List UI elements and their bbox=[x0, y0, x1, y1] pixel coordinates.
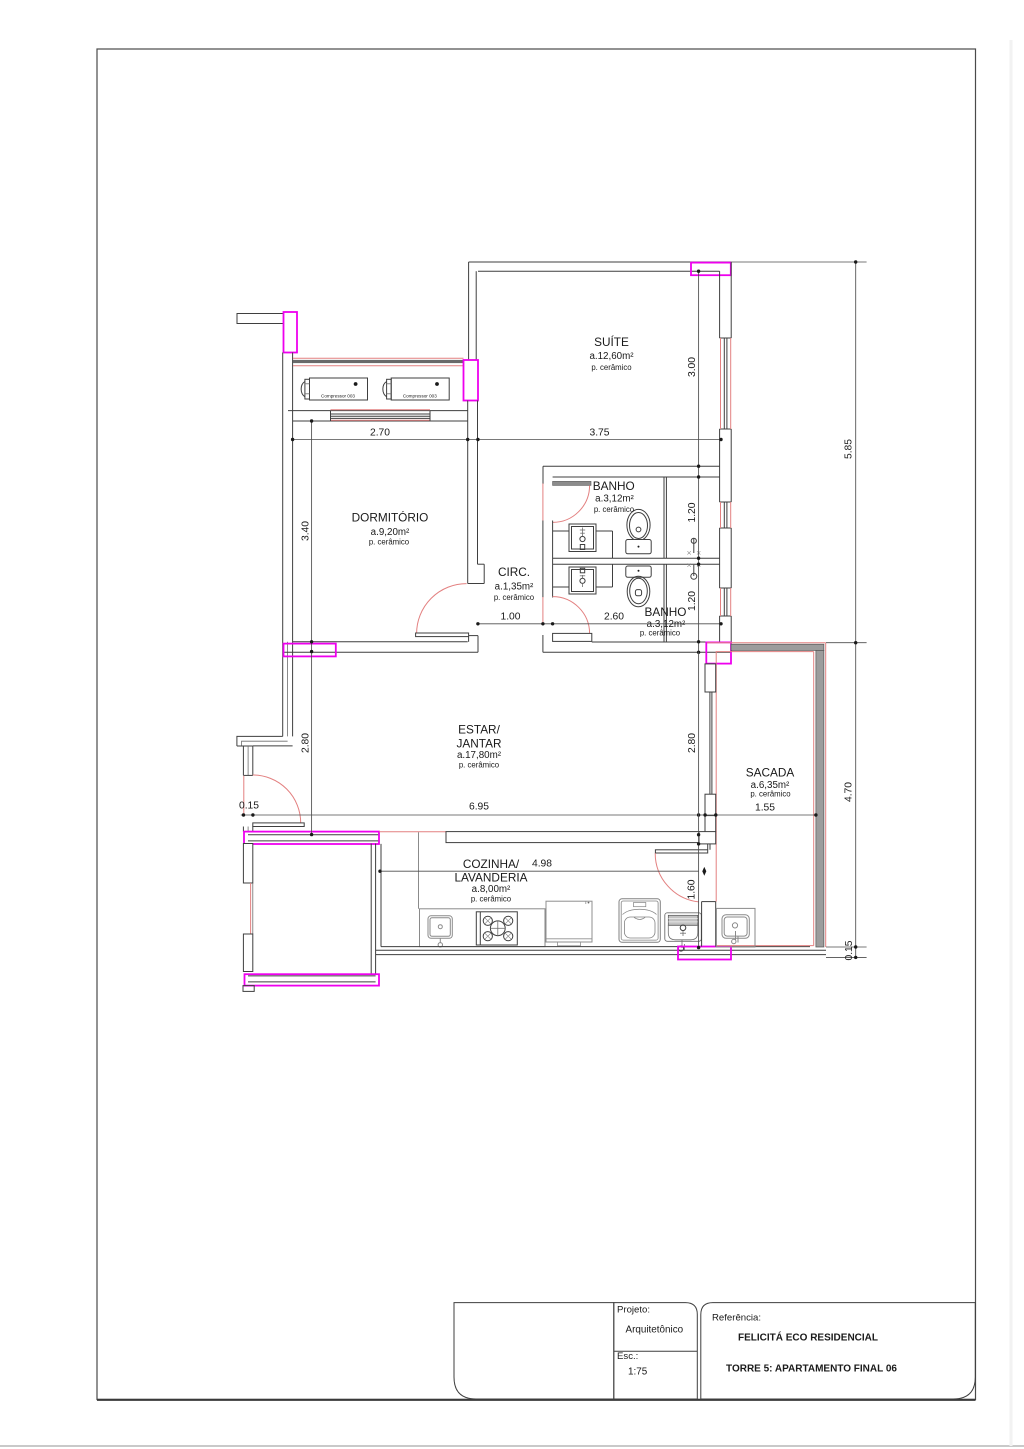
svg-text:1.55: 1.55 bbox=[755, 802, 775, 813]
svg-text:LAVANDERIA: LAVANDERIA bbox=[455, 871, 528, 885]
svg-text:0.15: 0.15 bbox=[239, 800, 259, 811]
svg-text:1:75: 1:75 bbox=[628, 1367, 648, 1378]
svg-text:FELICITÁ ECO RESIDENCIAL: FELICITÁ ECO RESIDENCIAL bbox=[738, 1331, 878, 1344]
svg-text:1.20: 1.20 bbox=[687, 502, 698, 522]
svg-text:p. cerâmico: p. cerâmico bbox=[471, 894, 512, 903]
svg-text:Projeto:: Projeto: bbox=[617, 1304, 650, 1315]
svg-text:3.75: 3.75 bbox=[589, 427, 609, 438]
svg-text:Esc.:: Esc.: bbox=[617, 1351, 638, 1362]
svg-text:2.80: 2.80 bbox=[687, 733, 698, 753]
svg-text:BANHO: BANHO bbox=[645, 605, 687, 619]
svg-text:Compressor 003: Compressor 003 bbox=[403, 393, 437, 398]
svg-text:3.00: 3.00 bbox=[687, 357, 698, 377]
svg-text:SUÍTE: SUÍTE bbox=[594, 335, 629, 349]
svg-text:3.40: 3.40 bbox=[301, 521, 312, 541]
svg-text:COZINHA/: COZINHA/ bbox=[463, 857, 520, 871]
svg-text:a.3,12m²: a.3,12m² bbox=[595, 494, 634, 505]
svg-text:Compressor 003: Compressor 003 bbox=[321, 393, 355, 398]
svg-text:JANTAR: JANTAR bbox=[456, 736, 501, 750]
svg-text:2.70: 2.70 bbox=[370, 427, 390, 438]
svg-text:5.85: 5.85 bbox=[844, 439, 855, 459]
svg-text:SACADA: SACADA bbox=[746, 765, 795, 779]
svg-text:DORMITÓRIO: DORMITÓRIO bbox=[352, 511, 429, 525]
svg-text:p. cerâmico: p. cerâmico bbox=[369, 538, 410, 547]
svg-text:p. cerâmico: p. cerâmico bbox=[640, 629, 681, 638]
svg-text:1.00: 1.00 bbox=[500, 611, 520, 622]
svg-text:p. cerâmico: p. cerâmico bbox=[459, 760, 500, 769]
svg-text:a.1,35m²: a.1,35m² bbox=[495, 581, 534, 592]
svg-text:Referência:: Referência: bbox=[712, 1313, 761, 1324]
svg-text:TORRE 5: APARTAMENTO FINAL 06: TORRE 5: APARTAMENTO FINAL 06 bbox=[726, 1363, 897, 1374]
svg-text:1.20: 1.20 bbox=[687, 591, 698, 611]
svg-text:a.9,20m²: a.9,20m² bbox=[371, 527, 410, 538]
svg-text:ESTAR/: ESTAR/ bbox=[458, 722, 500, 736]
svg-text:4.98: 4.98 bbox=[532, 858, 552, 869]
svg-text:BANHO: BANHO bbox=[593, 479, 635, 493]
svg-text:4.70: 4.70 bbox=[844, 782, 855, 802]
svg-text:1.60: 1.60 bbox=[687, 879, 698, 899]
svg-text:6.95: 6.95 bbox=[469, 801, 489, 812]
svg-text:Arquitetônico: Arquitetônico bbox=[626, 1325, 684, 1336]
svg-text:2.60: 2.60 bbox=[604, 611, 624, 622]
svg-text:p. cerâmico: p. cerâmico bbox=[750, 789, 791, 798]
svg-text:0.15: 0.15 bbox=[844, 940, 855, 960]
svg-text:2.80: 2.80 bbox=[301, 733, 312, 753]
svg-text:p. cerâmico: p. cerâmico bbox=[494, 593, 535, 602]
svg-text:p. cerâmico: p. cerâmico bbox=[594, 505, 635, 514]
svg-text:a.12,60m²: a.12,60m² bbox=[589, 351, 634, 362]
svg-text:CIRC.: CIRC. bbox=[498, 565, 530, 579]
svg-text:p. cerâmico: p. cerâmico bbox=[591, 363, 632, 372]
svg-text:a.8,00m²: a.8,00m² bbox=[472, 884, 511, 895]
